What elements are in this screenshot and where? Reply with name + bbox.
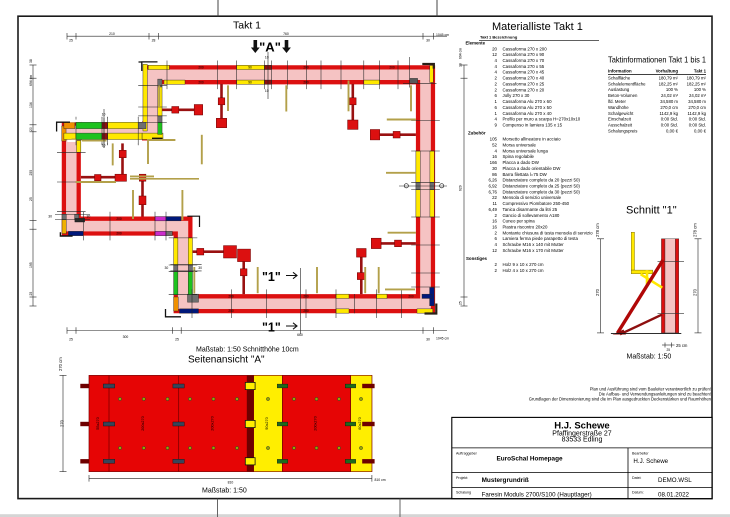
svg-text:6,92: 6,92	[488, 183, 497, 188]
svg-text:86: 86	[492, 172, 497, 177]
svg-text:Information: Information	[608, 69, 632, 74]
svg-text:Compressivo Piombatore 250-450: Compressivo Piombatore 250-450	[503, 201, 570, 206]
svg-text:10: 10	[102, 112, 106, 116]
svg-text:270: 270	[693, 288, 698, 296]
svg-text:660: 660	[297, 333, 303, 337]
svg-text:Elemente: Elemente	[466, 41, 486, 46]
svg-text:90: 90	[248, 80, 252, 84]
svg-text:34,580 m: 34,580 m	[660, 99, 678, 104]
svg-text:Cassaforma 270 x 25: Cassaforma 270 x 25	[503, 81, 545, 86]
svg-text:200: 200	[303, 66, 309, 70]
svg-text:Cassaforma Alu 270 x 60: Cassaforma Alu 270 x 60	[503, 99, 553, 104]
svg-text:"A": "A"	[259, 40, 281, 55]
svg-text:25: 25	[667, 348, 671, 352]
svg-text:200: 200	[303, 295, 309, 299]
svg-text:30: 30	[165, 266, 169, 270]
svg-text:Profilo per muro a scarpa H=27: Profilo per muro a scarpa H=270x10x10	[503, 117, 581, 122]
svg-text:Spina regolabile: Spina regolabile	[503, 154, 535, 159]
svg-text:Cassaforma Alu 270 x 40: Cassaforma Alu 270 x 40	[503, 111, 553, 116]
svg-text:Cassaforma 270 x 200: Cassaforma 270 x 200	[503, 46, 548, 51]
svg-text:20: 20	[492, 46, 497, 51]
svg-text:Tanica disarmante da litri 25: Tanica disarmante da litri 25	[503, 207, 558, 212]
svg-text:Auftraggeber: Auftraggeber	[456, 452, 478, 456]
svg-text:278 cm: 278 cm	[595, 223, 600, 237]
svg-text:200: 200	[116, 217, 122, 221]
svg-text:134: 134	[29, 102, 33, 108]
svg-text:200: 200	[228, 295, 234, 299]
svg-text:Cassaforma 270 x 55: Cassaforma 270 x 55	[503, 64, 545, 69]
svg-text:Maßstab: 1:50: Maßstab: 1:50	[627, 354, 672, 361]
svg-text:11: 11	[492, 201, 497, 206]
svg-text:105: 105	[490, 137, 498, 142]
svg-text:0:00 Std.: 0:00 Std.	[661, 123, 678, 128]
svg-text:30: 30	[48, 214, 52, 218]
svg-text:Schraube M16 x 140 mit Mutter: Schraube M16 x 140 mit Mutter	[503, 242, 565, 247]
svg-text:Placca a dado orientabile DW: Placca a dado orientabile DW	[503, 166, 562, 171]
svg-text:1045 cm: 1045 cm	[436, 33, 449, 37]
svg-text:Auslastung: Auslastung	[608, 87, 630, 92]
svg-text:10: 10	[102, 143, 106, 147]
svg-text:1142,9 kg: 1142,9 kg	[659, 111, 678, 116]
svg-text:22: 22	[492, 195, 497, 200]
svg-text:12: 12	[492, 52, 497, 57]
svg-text:Holz 9 x 10 x 270 cm: Holz 9 x 10 x 270 cm	[503, 262, 544, 267]
svg-text:30: 30	[426, 338, 430, 342]
svg-text:Takt 1: Takt 1	[694, 69, 707, 74]
svg-text:24,02 m³: 24,02 m³	[689, 93, 707, 98]
svg-text:Beton-Volumen: Beton-Volumen	[608, 93, 638, 98]
svg-text:200x270: 200x270	[141, 416, 145, 431]
svg-text:Gancio di sollevamento A180: Gancio di sollevamento A180	[503, 213, 560, 218]
svg-text:Faresin Moduls 2700/S100 (Haup: Faresin Moduls 2700/S100 (Hauptlager)	[482, 491, 592, 498]
svg-text:Mustergrundriß: Mustergrundriß	[482, 477, 529, 484]
svg-text:200: 200	[198, 80, 204, 84]
svg-text:760: 760	[283, 32, 289, 36]
svg-text:08.01.2022: 08.01.2022	[658, 491, 690, 498]
svg-text:Piastra riscontro 20x20: Piastra riscontro 20x20	[503, 225, 548, 230]
svg-text:0:00 Std.: 0:00 Std.	[689, 123, 706, 128]
svg-text:0:00 Std.: 0:00 Std.	[661, 117, 678, 122]
svg-text:38: 38	[459, 63, 463, 67]
svg-text:200x270: 200x270	[314, 416, 318, 431]
svg-text:1045 cm: 1045 cm	[436, 337, 449, 341]
svg-text:0,00 €: 0,00 €	[666, 129, 679, 134]
svg-text:182,25 m²: 182,25 m²	[659, 81, 679, 86]
svg-text:90x270: 90x270	[265, 417, 269, 429]
svg-text:Cassaforma 270 x 70: Cassaforma 270 x 70	[503, 58, 545, 63]
svg-text:166: 166	[490, 160, 498, 165]
svg-text:Einschalzeit: Einschalzeit	[608, 117, 632, 122]
svg-text:810: 810	[228, 481, 234, 485]
svg-text:Morsa universale lunga: Morsa universale lunga	[503, 148, 549, 153]
svg-text:Zubehör: Zubehör	[468, 131, 486, 136]
svg-text:Schnitt "1": Schnitt "1"	[626, 205, 677, 217]
svg-text:16: 16	[492, 219, 497, 224]
svg-text:Distanziatore completo da 20 (: Distanziatore completo da 20 (pezzi 50)	[503, 178, 581, 183]
svg-text:200: 200	[198, 66, 204, 70]
svg-text:Takt 1 Bezeichnung: Takt 1 Bezeichnung	[480, 35, 518, 40]
svg-text:Takt 1: Takt 1	[233, 20, 261, 32]
svg-text:H.J. Schewe: H.J. Schewe	[633, 458, 668, 465]
svg-text:Cassaforma 270 x 45: Cassaforma 270 x 45	[503, 70, 545, 75]
svg-text:"1": "1"	[262, 321, 281, 335]
svg-text:Maßstab: 1:50: Maßstab: 1:50	[202, 488, 247, 495]
svg-text:Morsa universale: Morsa universale	[503, 142, 537, 147]
svg-text:52: 52	[492, 142, 497, 147]
svg-text:28: 28	[152, 38, 156, 42]
svg-text:55x270: 55x270	[96, 417, 100, 429]
svg-text:Grundlagen der Dimensionierung: Grundlagen der Dimensionierung sind die …	[529, 397, 712, 402]
svg-text:"1": "1"	[262, 270, 281, 284]
svg-text:Compenso in lamiera 135 x 15: Compenso in lamiera 135 x 15	[503, 122, 563, 127]
svg-text:Schalfläche: Schalfläche	[608, 75, 631, 80]
svg-text:Schalung: Schalung	[456, 491, 471, 495]
svg-text:1142,9 kg: 1142,9 kg	[687, 111, 706, 116]
svg-text:Placca a dado DW: Placca a dado DW	[503, 160, 540, 165]
svg-text:278 cm: 278 cm	[693, 223, 698, 237]
svg-text:Projekt:: Projekt:	[456, 476, 468, 480]
svg-text:30: 30	[198, 266, 202, 270]
svg-text:30: 30	[87, 214, 91, 218]
svg-text:Vorhaltung: Vorhaltung	[656, 69, 679, 74]
svg-text:Seitenansicht "A": Seitenansicht "A"	[188, 355, 265, 366]
svg-text:Distanziatore completo da 30 (: Distanziatore completo da 30 (pezzi 50)	[503, 189, 581, 194]
svg-text:180,79 m²: 180,79 m²	[687, 75, 707, 80]
svg-text:Cassaforma 270 x 90: Cassaforma 270 x 90	[503, 52, 545, 57]
svg-text:25: 25	[69, 38, 73, 42]
svg-text:Cassaforma 270 x 40: Cassaforma 270 x 40	[503, 76, 545, 81]
svg-text:60x270: 60x270	[358, 417, 362, 429]
svg-text:6,26: 6,26	[488, 178, 497, 183]
svg-text:Cassaforma Alu 270 x 50: Cassaforma Alu 270 x 50	[503, 105, 553, 110]
svg-text:Datei:: Datei:	[632, 476, 641, 480]
svg-text:Lamiera ferma piede parapetto: Lamiera ferma piede parapetto di testa	[503, 236, 579, 241]
svg-text:810 cm: 810 cm	[375, 478, 386, 482]
svg-text:Schraube M16 x 170 mit Mutter: Schraube M16 x 170 mit Mutter	[503, 248, 565, 253]
svg-text:34,580 m: 34,580 m	[688, 99, 706, 104]
svg-text:694 cm: 694 cm	[459, 48, 463, 59]
svg-text:25: 25	[29, 197, 33, 201]
svg-text:100 %: 100 %	[694, 87, 706, 92]
svg-text:Ausschalzeit: Ausschalzeit	[608, 123, 633, 128]
svg-text:0,00 €: 0,00 €	[694, 129, 707, 134]
svg-text:90: 90	[248, 66, 252, 70]
svg-text:Taktinformationen Takt 1 bis: Taktinformationen Takt 1 bis 1	[608, 56, 706, 65]
svg-text:Holz 4 x 10 x 270 cm: Holz 4 x 10 x 270 cm	[503, 268, 544, 273]
svg-text:10: 10	[265, 56, 269, 60]
svg-text:Materialliste Takt 1: Materialliste Takt 1	[492, 21, 583, 33]
svg-text:629: 629	[459, 185, 463, 191]
svg-text:200: 200	[408, 295, 414, 299]
svg-text:200: 200	[116, 232, 122, 236]
svg-text:Schalelementfläche: Schalelementfläche	[608, 81, 646, 86]
svg-text:25: 25	[175, 338, 179, 342]
svg-text:694 cm: 694 cm	[29, 75, 33, 86]
svg-text:210: 210	[109, 32, 115, 36]
svg-text:Jolly 270 x 30: Jolly 270 x 30	[503, 93, 530, 98]
svg-text:270 cm: 270 cm	[58, 357, 63, 371]
svg-text:30: 30	[492, 166, 497, 171]
svg-text:25: 25	[29, 292, 33, 296]
svg-text:Cassaforma 270 x 20: Cassaforma 270 x 20	[503, 87, 545, 92]
svg-text:Wandhöhe: Wandhöhe	[608, 105, 629, 110]
svg-text:38: 38	[29, 59, 33, 63]
svg-text:16: 16	[492, 225, 497, 230]
svg-text:Cuneo per spina: Cuneo per spina	[503, 219, 536, 224]
svg-text:Bearbeiter: Bearbeiter	[632, 452, 649, 456]
svg-text:6,76: 6,76	[488, 189, 497, 194]
svg-text:Morsetto allineatore in acciai: Morsetto allineatore in acciaio	[503, 137, 562, 142]
svg-text:270,0 cm: 270,0 cm	[688, 105, 706, 110]
svg-text:Barra filettata l=75 DW: Barra filettata l=75 DW	[503, 172, 548, 177]
svg-text:20: 20	[29, 127, 33, 131]
svg-text:25 cm: 25 cm	[676, 343, 688, 348]
svg-text:10: 10	[265, 89, 269, 93]
svg-text:EuroSchal Homepage: EuroSchal Homepage	[497, 455, 563, 462]
svg-text:195: 195	[29, 262, 33, 268]
svg-text:Maßstab: 1:50 Schnitthöhe: Maßstab: 1:50 Schnitthöhe 10cm	[196, 347, 299, 354]
svg-text:180,79 m²: 180,79 m²	[659, 75, 679, 80]
svg-text:24,02 m³: 24,02 m³	[661, 93, 679, 98]
svg-text:Datum:: Datum:	[632, 491, 644, 495]
svg-text:Mensola di servizio universale: Mensola di servizio universale	[503, 195, 562, 200]
svg-text:12: 12	[492, 248, 497, 253]
svg-text:30: 30	[426, 38, 430, 42]
svg-text:200: 200	[303, 309, 309, 313]
svg-text:255: 255	[29, 170, 33, 176]
svg-text:25: 25	[69, 338, 73, 342]
svg-text:200x270: 200x270	[210, 416, 214, 431]
svg-text:6,49: 6,49	[488, 207, 497, 212]
svg-text:25: 25	[459, 301, 463, 305]
svg-text:16: 16	[492, 154, 497, 159]
svg-text:83533 Edling: 83533 Edling	[562, 436, 603, 443]
svg-text:200: 200	[228, 309, 234, 313]
svg-text:Montante chiusura di testa men: Montante chiusura di testa mensola di se…	[503, 230, 594, 235]
svg-text:200: 200	[389, 66, 395, 70]
svg-text:DEMO.WSL: DEMO.WSL	[658, 477, 692, 484]
svg-text:270,0 cm: 270,0 cm	[660, 105, 678, 110]
svg-text:Schalgewicht: Schalgewicht	[608, 111, 634, 116]
svg-text:200: 200	[303, 80, 309, 84]
svg-text:270: 270	[595, 288, 600, 296]
svg-text:100 %: 100 %	[666, 87, 678, 92]
svg-text:Schalungspreis: Schalungspreis	[608, 129, 637, 134]
svg-text:Sonstiges: Sonstiges	[466, 256, 488, 261]
svg-text:300: 300	[123, 335, 129, 339]
svg-text:182,25 m²: 182,25 m²	[687, 81, 707, 86]
svg-text:Distanziatore completo da 25 (: Distanziatore completo da 25 (pezzi 50)	[503, 183, 581, 188]
svg-text:0:00 Std.: 0:00 Std.	[689, 117, 706, 122]
svg-text:lfd. Meter: lfd. Meter	[608, 99, 626, 104]
svg-text:270: 270	[60, 419, 65, 427]
